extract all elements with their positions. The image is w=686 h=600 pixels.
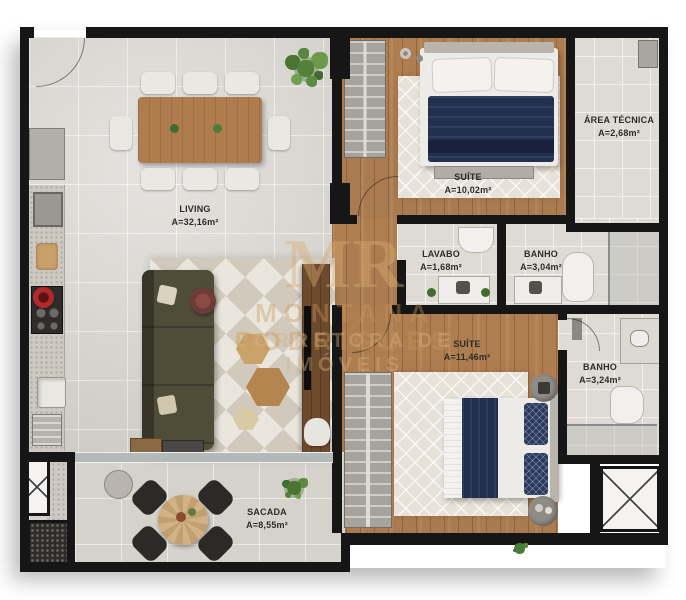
wall: [590, 460, 600, 533]
room-area: A=2,68m²: [564, 127, 674, 140]
dining-chair: [225, 72, 259, 94]
kitchen-sink: [37, 377, 66, 408]
window-planter-wood: [130, 438, 162, 453]
room-label-lavabo: LAVABO A=1,68m²: [386, 248, 496, 274]
dining-chair: [110, 116, 132, 150]
duct-shaft: [600, 466, 660, 532]
room-name: LAVABO: [386, 248, 496, 261]
room-name: SACADA: [212, 506, 322, 519]
plant-lavabo: [481, 288, 490, 297]
wall: [566, 223, 659, 232]
wardrobe-suite-2: [344, 372, 392, 528]
bed-2-duvet-fold: [444, 398, 464, 498]
room-name: ÁREA TÉCNICA: [564, 114, 674, 127]
nightstand-decor: [545, 507, 552, 514]
room-area: A=3,24m²: [545, 374, 655, 387]
ceiling-light: [400, 48, 411, 59]
sink-banho-2: [630, 330, 649, 347]
room-label-area-tecnica: ÁREA TÉCNICA A=2,68m²: [564, 114, 674, 140]
plant-lavabo: [427, 288, 436, 297]
kitchen-cabinet: [29, 128, 65, 180]
cutting-board: [36, 243, 58, 270]
shower-banho-2: [562, 424, 657, 456]
dining-chair: [141, 72, 175, 94]
wall: [332, 305, 342, 533]
balcony-stool: [104, 470, 133, 499]
dining-chair: [141, 168, 175, 190]
bed-2-pillow-navy: [524, 453, 548, 495]
room-area: A=8,55m²: [212, 519, 322, 532]
room-label-suite-2: SUÍTE A=11,46m²: [412, 338, 522, 364]
small-plant: [514, 543, 525, 554]
toilet-banho-2: [610, 386, 644, 424]
tv-screen: [304, 306, 311, 390]
bed-2-runner-navy: [462, 398, 498, 498]
wall: [558, 314, 567, 320]
dining-chair: [225, 168, 259, 190]
wall: [20, 27, 29, 572]
sofa-pillow: [157, 395, 178, 416]
dining-chair: [183, 168, 217, 190]
room-label-sacada: SACADA A=8,55m²: [212, 506, 322, 532]
room-label-banho-1: BANHO A=3,04m²: [486, 248, 596, 274]
smoke-detector: [416, 55, 423, 62]
balcony-plant: [287, 481, 301, 495]
room-label-living: LIVING A=32,16m²: [140, 203, 250, 229]
wall: [67, 452, 75, 572]
room-area: A=1,68m²: [386, 261, 496, 274]
bed-1-headboard: [424, 42, 554, 53]
floor-plan: LIVING A=32,16m² SUÍTE A=10,02m² ÁREA TÉ…: [0, 0, 686, 600]
room-area: A=11,46m²: [412, 351, 522, 364]
dining-chair: [183, 72, 217, 94]
bed-1-pillow: [431, 57, 492, 93]
bed-2-pillow-navy: [524, 403, 548, 445]
room-name: LIVING: [140, 203, 250, 216]
red-pot: [33, 287, 54, 308]
wall: [558, 455, 668, 464]
room-area: A=3,04m²: [486, 261, 596, 274]
room-name: BANHO: [545, 361, 655, 374]
bed-1-pillow: [493, 57, 554, 93]
wall: [332, 215, 357, 224]
shower-banho-1: [608, 226, 659, 312]
table-plant: [213, 124, 222, 133]
wall: [392, 305, 668, 314]
balcony-window-glass: [75, 452, 333, 463]
nightstand-decor: [535, 504, 543, 512]
palm-plant: [297, 60, 314, 77]
room-label-suite-1: SUÍTE A=10,02m²: [413, 171, 523, 197]
room-area: A=32,16m²: [140, 216, 250, 229]
table-plant: [170, 124, 179, 133]
balcony-table-decor: [176, 512, 186, 522]
round-side-table: [190, 288, 216, 314]
sink-lavabo: [456, 281, 470, 294]
wardrobe-suite-1: [344, 40, 386, 158]
nightstand-round: [528, 496, 558, 526]
technical-unit: [638, 40, 658, 68]
dining-chair: [268, 116, 290, 150]
room-label-banho-2: BANHO A=3,24m²: [545, 361, 655, 387]
room-name: BANHO: [486, 248, 596, 261]
sofa-pillow: [156, 284, 177, 305]
room-area: A=10,02m²: [413, 184, 523, 197]
bed-1-throw: [428, 140, 554, 153]
dining-table: [138, 97, 262, 163]
wall: [86, 27, 668, 38]
sink-banho-1: [529, 281, 542, 294]
wall: [345, 533, 668, 545]
structural-column: [330, 37, 350, 79]
armchair: [304, 418, 330, 446]
room-name: SUÍTE: [412, 338, 522, 351]
balcony-table-decor: [188, 508, 196, 516]
dishwasher: [32, 414, 62, 446]
wall: [659, 27, 668, 545]
room-name: SUÍTE: [413, 171, 523, 184]
microwave-oven: [33, 192, 63, 227]
wall: [397, 215, 566, 224]
